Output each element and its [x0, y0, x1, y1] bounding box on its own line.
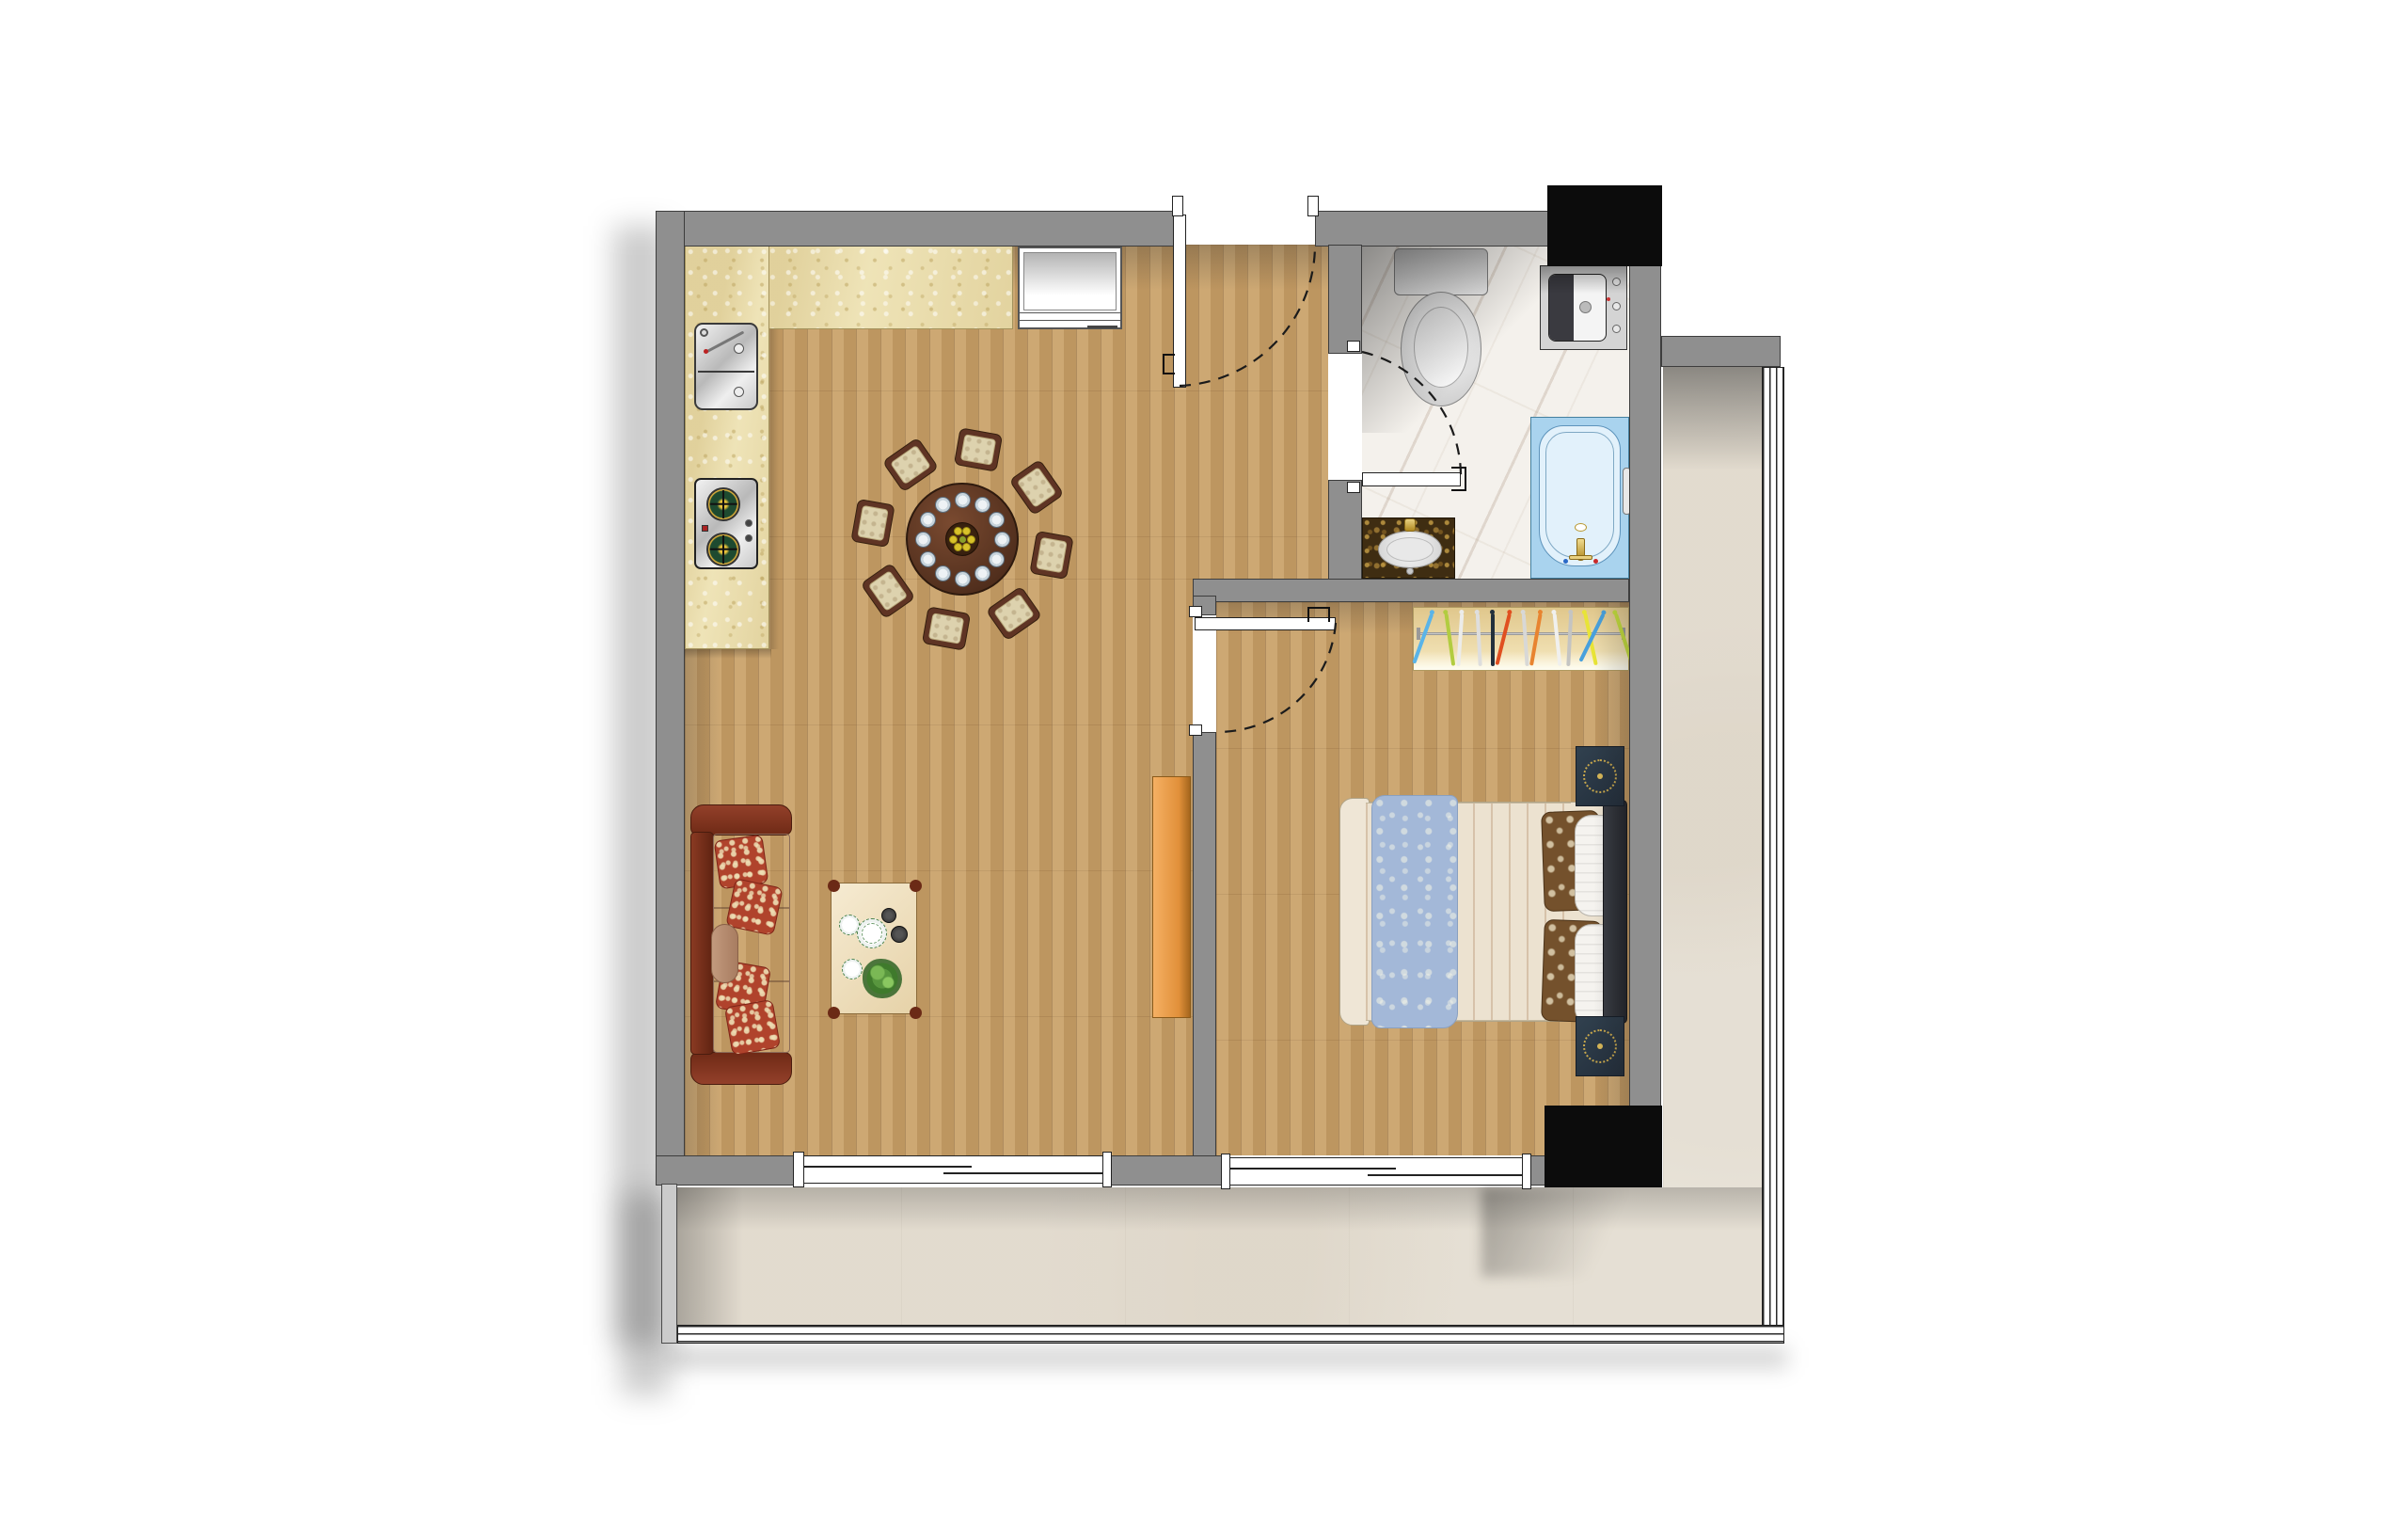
floor-plan-stage	[0, 0, 2408, 1528]
door-swing-arcs	[0, 0, 2408, 1528]
floor-plan-page: { "diagram": { "type": "floor-plan", "sc…	[0, 0, 2408, 1528]
entrance-swing-arc	[1180, 245, 1315, 386]
bedroom-swing-arc	[1217, 623, 1336, 732]
bathroom-swing-arc	[1362, 352, 1461, 480]
